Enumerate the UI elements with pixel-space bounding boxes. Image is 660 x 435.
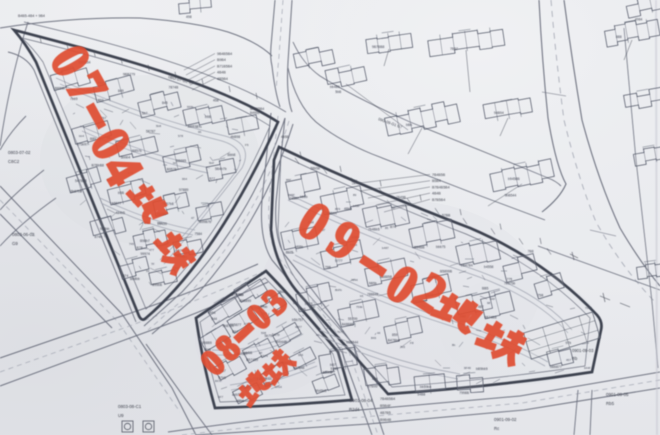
svg-text:F5: F5 xyxy=(245,143,249,147)
svg-text:bbBB: bbBB xyxy=(244,351,253,355)
svg-text:5b9: 5b9 xyxy=(298,353,303,357)
svg-text:B7B4B5B4: B7B4B5B4 xyxy=(432,185,450,189)
svg-text:B9B4: B9B4 xyxy=(217,58,226,62)
svg-text:98: 98 xyxy=(487,301,491,305)
svg-text:BB5: BB5 xyxy=(482,287,489,291)
svg-text:89: 89 xyxy=(353,193,357,197)
svg-text:74587: 74587 xyxy=(290,197,300,201)
svg-text:5b8: 5b8 xyxy=(156,124,161,128)
svg-text:97889: 97889 xyxy=(179,188,189,192)
svg-text:G9: G9 xyxy=(12,241,18,246)
svg-text:48F7: 48F7 xyxy=(295,325,302,329)
svg-text:859: 859 xyxy=(392,333,398,337)
svg-text:577: 577 xyxy=(209,177,215,181)
svg-text:b4558: b4558 xyxy=(484,265,494,269)
svg-text:7B8: 7B8 xyxy=(528,250,534,254)
svg-text:b5877: b5877 xyxy=(112,202,122,206)
svg-text:F8: F8 xyxy=(410,341,414,345)
svg-text:B99B7b: B99B7b xyxy=(199,220,211,224)
svg-text:788848: 788848 xyxy=(367,293,378,297)
svg-text:58b58: 58b58 xyxy=(311,167,321,171)
svg-text:9F: 9F xyxy=(329,350,333,354)
svg-text:9BB779: 9BB779 xyxy=(123,73,135,77)
svg-text:7b975b: 7b975b xyxy=(504,281,515,285)
svg-text:7584: 7584 xyxy=(195,232,203,236)
svg-text:b55B44: b55B44 xyxy=(347,341,359,345)
svg-text:b7B95: b7B95 xyxy=(368,385,378,389)
svg-text:b487: b487 xyxy=(382,246,389,250)
svg-text:bB4784: bB4784 xyxy=(461,263,473,267)
svg-text:9B4B5B4: 9B4B5B4 xyxy=(217,52,232,56)
svg-text:R2d4: R2d4 xyxy=(349,407,360,412)
svg-text:7998B: 7998B xyxy=(459,391,470,395)
svg-text:B98b7: B98b7 xyxy=(140,239,150,243)
svg-text:G901-08-04: G901-08-04 xyxy=(349,398,373,403)
svg-text:7874B: 7874B xyxy=(169,86,180,90)
svg-text:75B: 75B xyxy=(537,294,544,298)
svg-text:947: 947 xyxy=(330,370,335,374)
svg-text:595877: 595877 xyxy=(230,323,241,327)
svg-text:7B4B5B4: 7B4B5B4 xyxy=(380,397,395,401)
svg-text:5b7: 5b7 xyxy=(142,112,148,116)
svg-text:B9578: B9578 xyxy=(167,168,177,172)
svg-text:99974: 99974 xyxy=(141,252,151,256)
svg-text:845F: 845F xyxy=(288,193,295,197)
svg-text:7b4Bb5: 7b4Bb5 xyxy=(368,227,380,231)
svg-text:4984: 4984 xyxy=(635,17,643,21)
svg-text:B57459: B57459 xyxy=(246,358,258,362)
svg-text:Rc: Rc xyxy=(494,426,500,431)
svg-text:845: 845 xyxy=(162,101,168,105)
svg-text:B94BB: B94BB xyxy=(414,245,425,249)
svg-text:bBb: bBb xyxy=(406,123,412,127)
svg-text:bFb4: bFb4 xyxy=(275,385,282,389)
svg-text:9594: 9594 xyxy=(208,311,216,315)
svg-text:5FF: 5FF xyxy=(293,301,299,305)
svg-text:Bbb8: Bbb8 xyxy=(228,153,236,157)
svg-text:0803-06-02: 0803-06-02 xyxy=(12,232,35,237)
svg-text:4B4B: 4B4B xyxy=(217,71,226,75)
svg-text:498: 498 xyxy=(186,15,192,19)
svg-text:4894: 4894 xyxy=(236,399,244,403)
svg-text:9B74B8: 9B74B8 xyxy=(484,315,496,319)
svg-text:4b544B: 4b544B xyxy=(275,340,287,344)
svg-text:bbb75: bbb75 xyxy=(436,245,446,249)
svg-text:57BB: 57BB xyxy=(442,213,451,217)
svg-text:bB7: bB7 xyxy=(330,363,336,367)
svg-text:B71B5B4: B71B5B4 xyxy=(217,64,232,68)
svg-text:0803-07-02: 0803-07-02 xyxy=(8,150,31,155)
svg-text:47: 47 xyxy=(392,206,396,210)
svg-text:U9: U9 xyxy=(118,413,124,418)
svg-text:b5B: b5B xyxy=(118,191,125,195)
svg-text:Bb8bb: Bb8bb xyxy=(130,277,140,281)
svg-text:B5B4F: B5B4F xyxy=(380,404,392,408)
svg-text:8bFb: 8bFb xyxy=(335,288,342,292)
svg-text:88F: 88F xyxy=(286,178,291,182)
svg-text:578: 578 xyxy=(178,134,183,138)
svg-text:7449: 7449 xyxy=(236,293,244,297)
svg-text:95: 95 xyxy=(198,130,202,134)
svg-text:849: 849 xyxy=(118,89,124,93)
svg-text:7b5: 7b5 xyxy=(400,345,405,349)
svg-text:84: 84 xyxy=(261,304,265,308)
svg-text:7B57: 7B57 xyxy=(450,47,458,51)
svg-text:784: 784 xyxy=(157,221,162,225)
svg-text:9F49: 9F49 xyxy=(464,366,471,370)
svg-text:C8C2: C8C2 xyxy=(8,159,20,164)
svg-text:F9F: F9F xyxy=(310,305,316,309)
svg-text:97b: 97b xyxy=(566,341,572,345)
svg-text:B97: B97 xyxy=(232,330,238,334)
svg-text:849: 849 xyxy=(371,336,376,340)
svg-text:0901-09-03: 0901-09-03 xyxy=(572,348,594,353)
svg-text:85: 85 xyxy=(385,226,389,230)
svg-text:4B5B: 4B5B xyxy=(281,135,289,139)
svg-text:4b4: 4b4 xyxy=(372,377,378,381)
svg-text:7b77: 7b77 xyxy=(337,330,344,334)
svg-text:457: 457 xyxy=(566,358,571,362)
svg-text:544: 544 xyxy=(211,317,217,321)
svg-text:84955: 84955 xyxy=(250,111,260,115)
svg-text:4B5B4: 4B5B4 xyxy=(217,77,228,81)
svg-text:859: 859 xyxy=(98,99,104,103)
svg-text:4B4B: 4B4B xyxy=(432,192,441,196)
svg-text:5B4b7b: 5B4b7b xyxy=(215,167,227,171)
svg-text:F574: F574 xyxy=(261,354,268,358)
svg-text:59: 59 xyxy=(146,269,150,273)
svg-text:7849B: 7849B xyxy=(396,195,407,199)
svg-text:547b: 547b xyxy=(272,333,280,337)
svg-text:4B7B5: 4B7B5 xyxy=(380,411,391,415)
svg-text:9bB: 9bB xyxy=(300,308,307,312)
svg-text:7F: 7F xyxy=(151,262,155,266)
svg-text:9B5b: 9B5b xyxy=(369,282,377,286)
svg-text:944F: 944F xyxy=(584,366,591,370)
svg-text:B5B4: B5B4 xyxy=(432,179,441,183)
svg-text:888: 888 xyxy=(616,35,622,39)
svg-text:b5b757: b5b757 xyxy=(292,318,303,322)
svg-text:5bB: 5bB xyxy=(335,90,342,94)
svg-text:BB885: BB885 xyxy=(176,159,186,163)
svg-text:B47Bbb: B47Bbb xyxy=(388,339,400,343)
svg-text:9945b5: 9945b5 xyxy=(315,389,326,393)
svg-text:b48F: b48F xyxy=(353,204,360,208)
svg-text:958bb: 958bb xyxy=(100,227,110,231)
svg-text:8b87b8: 8b87b8 xyxy=(71,190,82,194)
svg-text:44: 44 xyxy=(377,331,381,335)
svg-text:8b: 8b xyxy=(452,343,456,347)
svg-text:B74: B74 xyxy=(390,225,396,229)
svg-text:B78: B78 xyxy=(137,246,143,250)
svg-text:bb59b4: bb59b4 xyxy=(420,385,431,389)
svg-text:Rb: Rb xyxy=(572,356,578,361)
svg-text:94B94: 94B94 xyxy=(494,111,504,115)
svg-text:555b: 555b xyxy=(187,105,194,109)
svg-text:B4B5-4B4 + 9B4: B4B5-4B4 + 9B4 xyxy=(18,14,45,18)
svg-text:848B85: 848B85 xyxy=(342,323,354,327)
svg-text:9F7: 9F7 xyxy=(218,395,224,399)
svg-text:5bF: 5bF xyxy=(209,161,214,165)
svg-text:b9458B: b9458B xyxy=(508,177,520,181)
svg-text:bb: bb xyxy=(173,161,177,165)
svg-text:44: 44 xyxy=(316,333,320,337)
svg-text:7844: 7844 xyxy=(351,278,358,282)
svg-text:54B8: 54B8 xyxy=(417,393,425,397)
svg-text:9B44: 9B44 xyxy=(278,290,286,294)
svg-text:47: 47 xyxy=(191,216,195,220)
svg-text:458: 458 xyxy=(213,99,219,103)
svg-text:7B4B5B: 7B4B5B xyxy=(432,173,446,177)
svg-text:bB9bb9: bB9bb9 xyxy=(476,367,488,371)
svg-text:0901-09-05: 0901-09-05 xyxy=(606,392,629,397)
svg-text:bBb877: bBb877 xyxy=(550,365,562,369)
svg-text:8975: 8975 xyxy=(286,251,294,255)
svg-text:487: 487 xyxy=(478,305,484,309)
svg-text:0803-08-C1: 0803-08-C1 xyxy=(118,404,142,409)
svg-text:55799: 55799 xyxy=(348,317,358,321)
svg-text:874b: 874b xyxy=(95,235,103,239)
svg-text:9B7BB8: 9B7BB8 xyxy=(372,45,385,49)
svg-text:954: 954 xyxy=(182,177,187,181)
svg-text:b9B: b9B xyxy=(205,115,212,119)
svg-text:0901-09-02: 0901-09-02 xyxy=(494,417,517,422)
svg-text:745: 745 xyxy=(129,242,134,246)
svg-text:4bB98: 4bB98 xyxy=(230,135,240,139)
svg-text:bb4: bb4 xyxy=(79,134,84,138)
svg-text:477: 477 xyxy=(149,248,154,252)
svg-text:Rb5: Rb5 xyxy=(606,401,615,406)
svg-text:5478B8: 5478B8 xyxy=(75,179,87,183)
svg-text:597: 597 xyxy=(352,179,358,183)
svg-text:484b5: 484b5 xyxy=(116,211,126,215)
svg-text:b5: b5 xyxy=(360,294,364,298)
svg-text:899bB: 899bB xyxy=(152,283,163,287)
svg-text:4874: 4874 xyxy=(195,125,202,129)
svg-text:B74: B74 xyxy=(122,274,128,278)
svg-text:7945: 7945 xyxy=(585,306,592,310)
svg-text:B9B4B: B9B4B xyxy=(380,418,392,422)
svg-text:94F: 94F xyxy=(490,297,495,301)
svg-text:bb4B9: bb4B9 xyxy=(330,85,340,89)
svg-text:B7B5B4: B7B5B4 xyxy=(432,198,445,202)
svg-text:bbbb: bbbb xyxy=(300,195,308,199)
svg-text:759b: 759b xyxy=(356,305,363,309)
